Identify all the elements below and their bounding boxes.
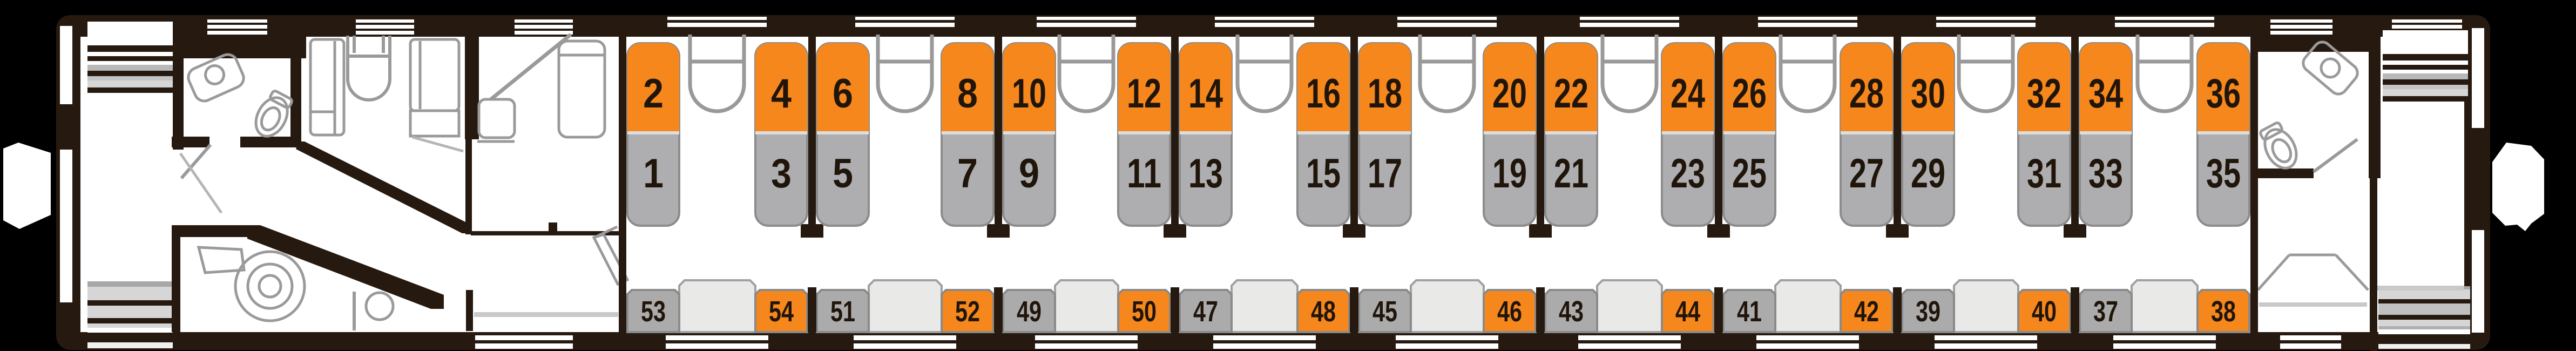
svg-text:20: 20 [1492, 71, 1527, 117]
svg-text:5: 5 [833, 151, 853, 197]
svg-text:50: 50 [1132, 295, 1157, 328]
svg-text:28: 28 [1849, 71, 1884, 117]
svg-text:45: 45 [1372, 295, 1397, 328]
svg-text:16: 16 [1306, 71, 1341, 117]
svg-text:21: 21 [1554, 151, 1588, 197]
svg-text:38: 38 [2211, 295, 2236, 328]
svg-text:40: 40 [2032, 295, 2057, 328]
svg-text:13: 13 [1188, 151, 1223, 197]
svg-text:36: 36 [2206, 71, 2241, 117]
svg-text:34: 34 [2088, 71, 2123, 117]
svg-text:52: 52 [955, 295, 980, 328]
svg-text:6: 6 [833, 71, 853, 117]
svg-text:33: 33 [2088, 151, 2123, 197]
svg-text:4: 4 [771, 71, 792, 117]
svg-text:1: 1 [643, 151, 664, 197]
svg-text:18: 18 [1368, 71, 1402, 117]
svg-text:44: 44 [1675, 295, 1700, 328]
svg-text:9: 9 [1019, 151, 1039, 197]
svg-text:46: 46 [1497, 295, 1522, 328]
svg-text:49: 49 [1017, 295, 1042, 328]
svg-text:2: 2 [643, 71, 664, 117]
svg-text:48: 48 [1311, 295, 1336, 328]
svg-text:25: 25 [1732, 151, 1767, 197]
svg-text:41: 41 [1737, 295, 1762, 328]
svg-text:10: 10 [1012, 71, 1046, 117]
svg-text:47: 47 [1193, 295, 1218, 328]
svg-text:42: 42 [1854, 295, 1879, 328]
svg-text:22: 22 [1554, 71, 1588, 117]
svg-text:8: 8 [957, 71, 978, 117]
svg-text:51: 51 [830, 295, 855, 328]
svg-text:39: 39 [1916, 295, 1941, 328]
svg-text:32: 32 [2027, 71, 2061, 117]
svg-text:35: 35 [2206, 151, 2241, 197]
svg-text:30: 30 [1911, 71, 1945, 117]
svg-text:31: 31 [2027, 151, 2061, 197]
svg-text:37: 37 [2093, 295, 2118, 328]
svg-text:54: 54 [769, 295, 794, 328]
svg-text:12: 12 [1127, 71, 1161, 117]
svg-text:7: 7 [957, 151, 978, 197]
svg-text:29: 29 [1911, 151, 1945, 197]
svg-text:53: 53 [641, 295, 666, 328]
svg-text:14: 14 [1188, 71, 1223, 117]
svg-text:26: 26 [1732, 71, 1767, 117]
svg-text:11: 11 [1127, 151, 1161, 197]
svg-text:15: 15 [1306, 151, 1341, 197]
svg-text:3: 3 [771, 151, 792, 197]
svg-text:24: 24 [1671, 71, 1705, 117]
svg-text:23: 23 [1671, 151, 1705, 197]
svg-text:17: 17 [1368, 151, 1402, 197]
svg-text:27: 27 [1849, 151, 1884, 197]
svg-text:43: 43 [1559, 295, 1584, 328]
svg-text:19: 19 [1492, 151, 1527, 197]
